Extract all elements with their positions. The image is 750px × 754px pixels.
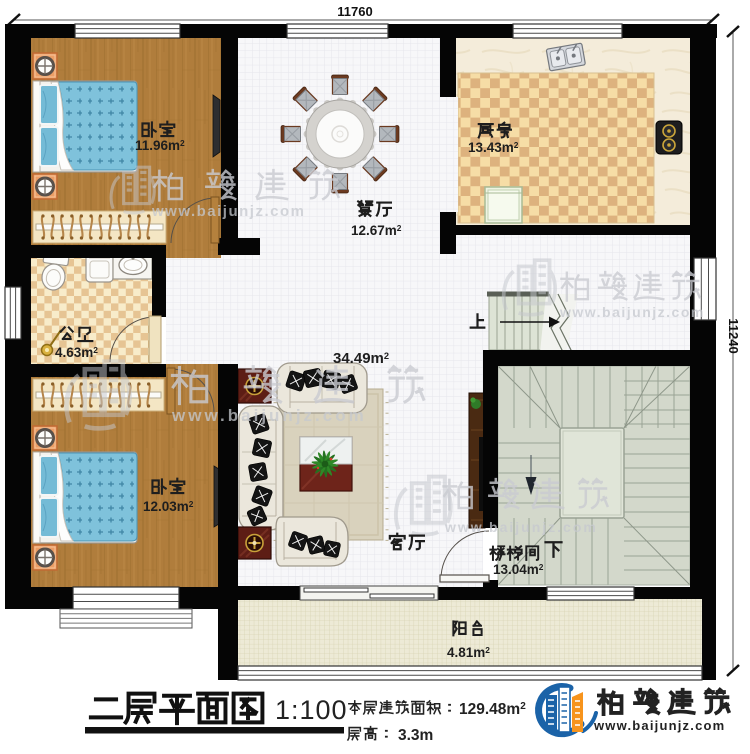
svg-text:4.63m2: 4.63m2 [55, 345, 98, 360]
svg-text:www.baijunjz.com: www.baijunjz.com [444, 519, 598, 535]
svg-text:www.baijunjz.com: www.baijunjz.com [151, 203, 305, 220]
svg-text:13.04m2: 13.04m2 [493, 562, 544, 577]
svg-text:3.3m: 3.3m [398, 727, 433, 744]
svg-text:www.baijunjz.com: www.baijunjz.com [593, 718, 725, 733]
svg-text:11760: 11760 [337, 4, 372, 19]
svg-text:www.baijunjz.com: www.baijunjz.com [171, 406, 367, 425]
svg-text:13.43m2: 13.43m2 [468, 140, 519, 155]
svg-text:www.baijunjz.com: www.baijunjz.com [559, 304, 705, 320]
svg-text:1:100: 1:100 [275, 695, 348, 725]
svg-text:11240: 11240 [726, 318, 741, 353]
svg-text:12.67m2: 12.67m2 [351, 223, 402, 238]
svg-text:129.48m2: 129.48m2 [459, 701, 526, 718]
svg-text:34.49m2: 34.49m2 [333, 350, 389, 367]
svg-text:12.03m2: 12.03m2 [143, 499, 194, 514]
svg-text:4.81m2: 4.81m2 [447, 645, 490, 660]
svg-text:11.96m2: 11.96m2 [135, 138, 185, 153]
